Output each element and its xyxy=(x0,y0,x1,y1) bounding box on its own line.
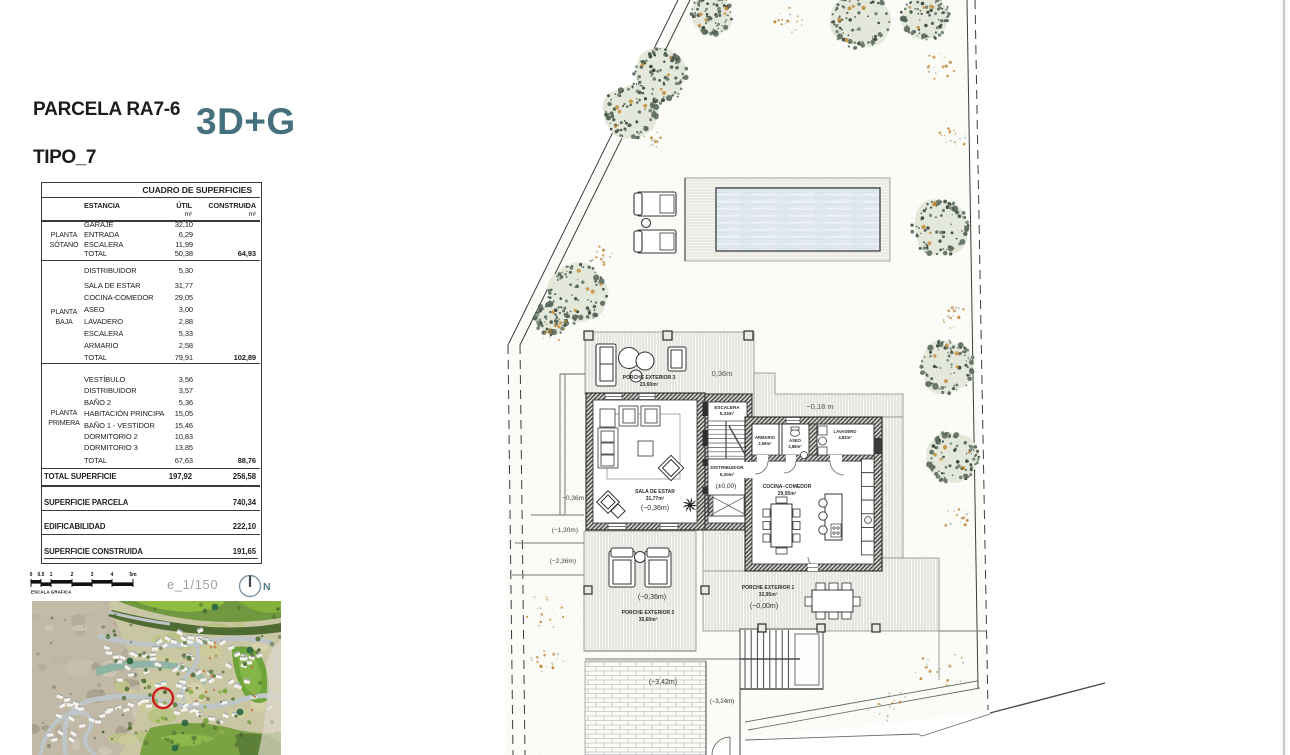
svg-text:(−3,24m): (−3,24m) xyxy=(710,699,734,705)
svg-text:5,30m²: 5,30m² xyxy=(720,472,735,477)
svg-text:−0,18 m: −0,18 m xyxy=(806,402,833,411)
svg-text:3: 3 xyxy=(91,572,94,578)
svg-text:PORCHE EXTERIOR 2: PORCHE EXTERIOR 2 xyxy=(622,610,675,616)
svg-text:PORCHE EXTERIOR 1: PORCHE EXTERIOR 1 xyxy=(742,585,795,591)
svg-text:5,33m²: 5,33m² xyxy=(720,411,735,416)
svg-text:(−1,30m): (−1,30m) xyxy=(552,527,578,534)
svg-text:0.5: 0.5 xyxy=(38,572,45,578)
svg-text:PORCHE EXTERIOR 3: PORCHE EXTERIOR 3 xyxy=(623,375,676,381)
svg-text:(−2,36m): (−2,36m) xyxy=(550,558,576,565)
svg-text:2,88m²: 2,88m² xyxy=(788,444,802,449)
svg-text:4,82m²: 4,82m² xyxy=(838,435,852,440)
svg-text:ESCALA GRAFICA: ESCALA GRAFICA xyxy=(31,590,72,595)
svg-text:0,36m: 0,36m xyxy=(712,369,733,378)
svg-text:N: N xyxy=(263,581,271,593)
svg-text:0: 0 xyxy=(30,572,33,578)
svg-text:ASEO: ASEO xyxy=(789,438,802,443)
svg-text:(−0,00m): (−0,00m) xyxy=(750,603,778,610)
svg-text:5m: 5m xyxy=(129,572,137,578)
svg-text:(−3,42m): (−3,42m) xyxy=(649,679,677,686)
svg-text:31,77m²: 31,77m² xyxy=(646,496,665,502)
svg-text:35,60m²: 35,60m² xyxy=(639,617,658,623)
svg-text:23,60m²: 23,60m² xyxy=(640,382,659,388)
svg-text:1: 1 xyxy=(50,572,53,578)
svg-text:LAVADERO: LAVADERO xyxy=(834,429,858,434)
svg-text:(−0,36m): (−0,36m) xyxy=(641,505,669,512)
svg-text:2,59m²: 2,59m² xyxy=(758,441,772,446)
svg-text:e_1/150: e_1/150 xyxy=(167,577,218,592)
svg-text:4: 4 xyxy=(111,572,114,578)
svg-text:(−0,36m): (−0,36m) xyxy=(638,594,666,601)
svg-text:ESCALERA: ESCALERA xyxy=(714,405,740,410)
svg-text:29,05m²: 29,05m² xyxy=(778,491,797,497)
svg-text:ARMARIO: ARMARIO xyxy=(755,435,776,440)
svg-text:32,95m²: 32,95m² xyxy=(759,592,778,598)
svg-text:−0,36m: −0,36m xyxy=(562,495,584,502)
svg-text:DISTRIBUIDOR: DISTRIBUIDOR xyxy=(710,465,744,470)
svg-text:(±0,00): (±0,00) xyxy=(716,483,737,490)
svg-text:SALA DE ESTAR: SALA DE ESTAR xyxy=(635,489,675,495)
svg-text:2: 2 xyxy=(71,572,74,578)
svg-text:COCINA–COMEDOR: COCINA–COMEDOR xyxy=(763,484,812,490)
